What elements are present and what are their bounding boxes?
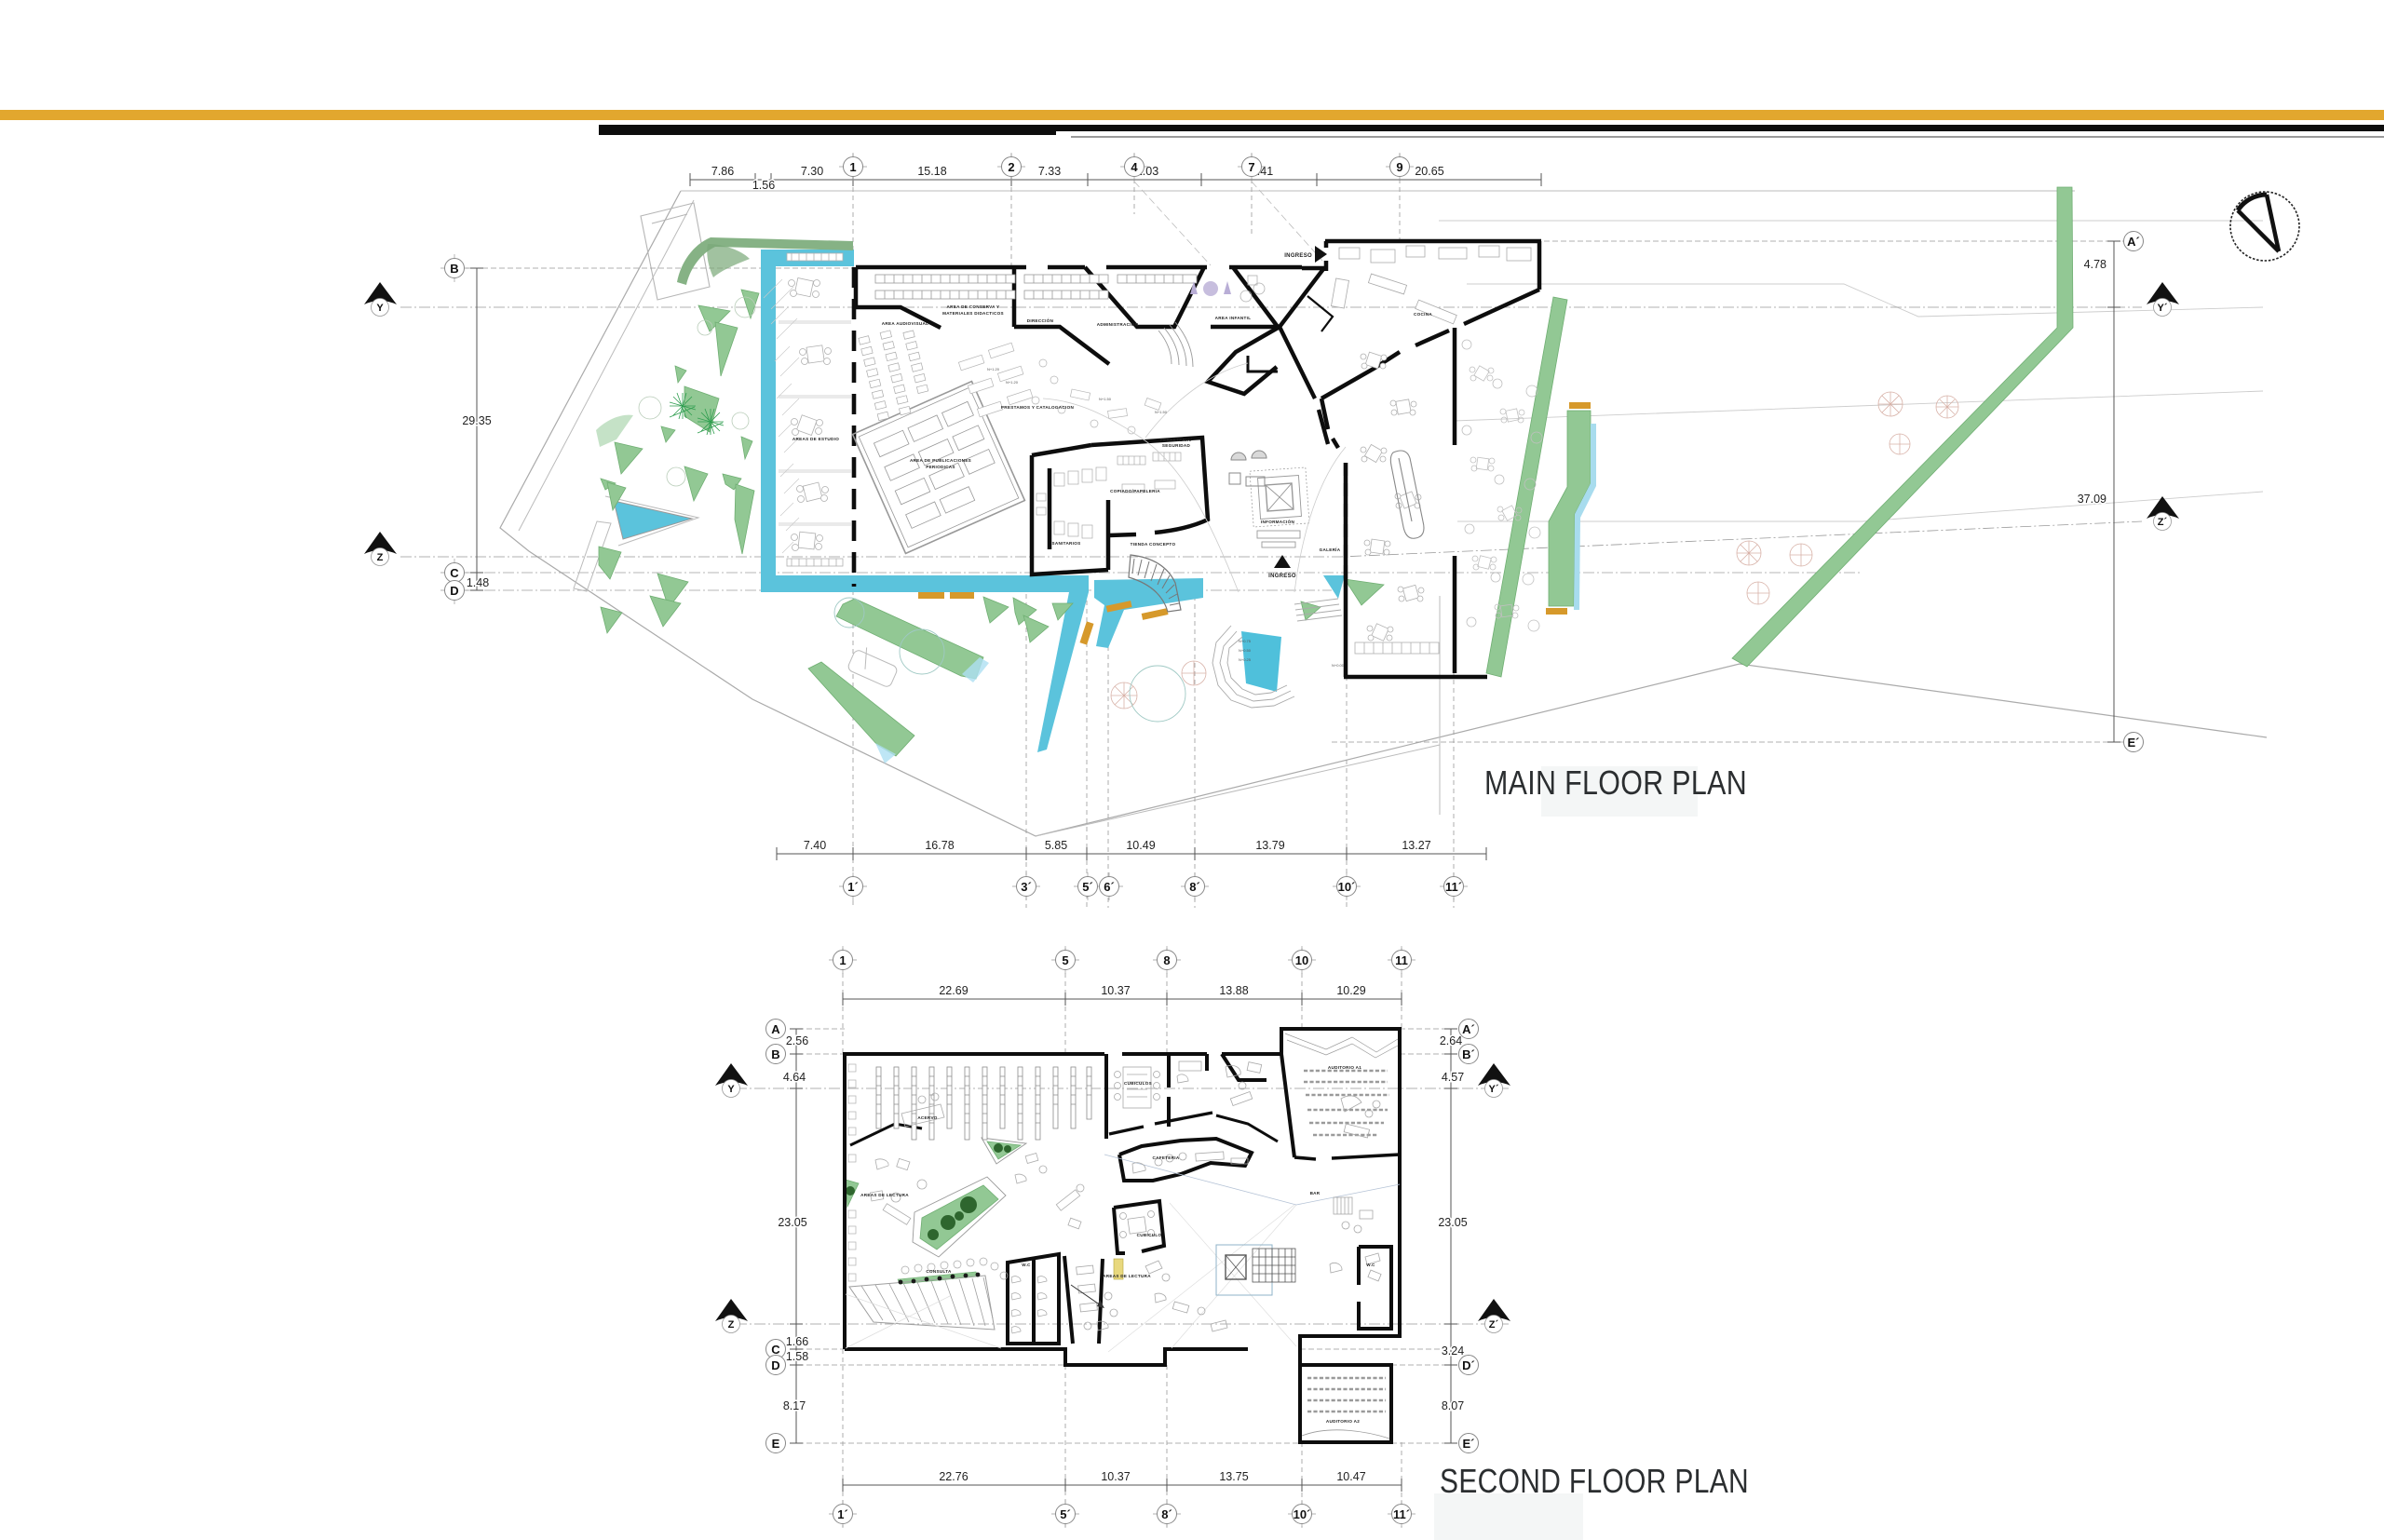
svg-text:9: 9	[1396, 160, 1402, 174]
svg-text:INFORMACIÓN: INFORMACIÓN	[1261, 518, 1295, 524]
svg-text:1: 1	[839, 953, 846, 967]
svg-text:AREA DE PUBLICACIONES: AREA DE PUBLICACIONES	[910, 458, 971, 463]
svg-text:20.65: 20.65	[1415, 165, 1443, 178]
svg-text:N+0.75: N+0.75	[1239, 639, 1252, 643]
svg-text:7: 7	[1248, 160, 1254, 174]
svg-text:E´: E´	[1463, 1437, 1475, 1451]
svg-text:10: 10	[1295, 953, 1308, 967]
svg-text:SEGURIDAD: SEGURIDAD	[1162, 443, 1191, 448]
svg-text:4.78: 4.78	[2084, 258, 2106, 271]
svg-text:8.17: 8.17	[783, 1399, 806, 1412]
svg-text:23.05: 23.05	[1438, 1216, 1467, 1229]
svg-text:E: E	[772, 1437, 780, 1451]
svg-text:8: 8	[1163, 953, 1170, 967]
svg-text:SANITARIOS: SANITARIOS	[1052, 541, 1081, 546]
svg-text:CAFETERIA: CAFETERIA	[1153, 1155, 1180, 1160]
svg-text:Y´: Y´	[1489, 1084, 1499, 1095]
svg-text:B: B	[771, 1047, 779, 1061]
svg-text:B´: B´	[1462, 1047, 1475, 1061]
svg-text:5.85: 5.85	[1045, 839, 1067, 852]
svg-text:10.37: 10.37	[1101, 984, 1130, 997]
svg-text:C: C	[450, 566, 459, 580]
svg-text:N+1.20: N+1.20	[1006, 380, 1019, 385]
svg-text:AREA INFANTIL: AREA INFANTIL	[1215, 316, 1252, 320]
svg-text:E´: E´	[2128, 736, 2140, 750]
svg-text:Y: Y	[727, 1084, 735, 1095]
svg-text:AREA AUDIOVISUAL: AREA AUDIOVISUAL	[882, 321, 928, 326]
svg-text:13.27: 13.27	[1402, 839, 1430, 852]
svg-text:4.57: 4.57	[1442, 1071, 1464, 1084]
svg-text:1.56: 1.56	[752, 179, 775, 192]
svg-text:8´: 8´	[1189, 880, 1200, 894]
svg-text:5´: 5´	[1082, 880, 1093, 894]
svg-text:1.48: 1.48	[467, 576, 489, 589]
svg-text:3.24: 3.24	[1442, 1344, 1464, 1358]
svg-text:1´: 1´	[847, 880, 859, 894]
svg-text:FERRETERIA/: FERRETERIA/	[1160, 438, 1192, 442]
svg-text:COCINA: COCINA	[1414, 312, 1432, 317]
svg-text:15.18: 15.18	[917, 165, 946, 178]
svg-text:N+0.25: N+0.25	[1239, 657, 1252, 662]
svg-text:5: 5	[1062, 953, 1068, 967]
svg-text:D: D	[450, 584, 458, 598]
svg-text:B: B	[450, 262, 458, 276]
svg-text:N+1.20: N+1.20	[987, 367, 1000, 371]
svg-text:AUDITORIO A1: AUDITORIO A1	[1328, 1065, 1361, 1070]
svg-text:N+0.00: N+0.00	[1332, 663, 1345, 668]
svg-text:Y: Y	[376, 303, 384, 314]
svg-text:13.75: 13.75	[1219, 1470, 1248, 1483]
svg-text:Z´: Z´	[2158, 517, 2168, 528]
svg-text:37.09: 37.09	[2078, 493, 2106, 506]
svg-text:10.47: 10.47	[1336, 1470, 1365, 1483]
svg-text:A: A	[771, 1022, 780, 1036]
svg-text:AREA DE CONSERVA Y: AREA DE CONSERVA Y	[947, 304, 1000, 309]
svg-text:BAR: BAR	[1310, 1191, 1321, 1196]
svg-text:DIRECCIÓN: DIRECCIÓN	[1027, 317, 1054, 323]
svg-text:Z´: Z´	[1489, 1319, 1499, 1331]
svg-text:2.56: 2.56	[786, 1034, 808, 1047]
svg-text:3´: 3´	[1021, 880, 1032, 894]
svg-text:29.35: 29.35	[462, 414, 491, 427]
svg-text:8´: 8´	[1161, 1507, 1172, 1521]
svg-text:7.33: 7.33	[1038, 165, 1061, 178]
svg-text:Y´: Y´	[2158, 303, 2168, 314]
svg-text:PERIODICAS: PERIODICAS	[926, 465, 955, 469]
svg-text:INGRESO: INGRESO	[1268, 574, 1296, 579]
svg-text:ACERVO: ACERVO	[917, 1115, 937, 1120]
svg-text:N+1.50: N+1.50	[1099, 397, 1112, 401]
svg-text:10.29: 10.29	[1336, 984, 1365, 997]
svg-text:13.79: 13.79	[1255, 839, 1284, 852]
svg-text:11: 11	[1395, 953, 1408, 967]
svg-text:11´: 11´	[1393, 1507, 1410, 1521]
svg-text:10.49: 10.49	[1126, 839, 1155, 852]
svg-text:10.37: 10.37	[1101, 1470, 1130, 1483]
svg-text:22.76: 22.76	[939, 1470, 968, 1483]
svg-text:ADMINISTRACIÓN: ADMINISTRACIÓN	[1097, 320, 1139, 327]
svg-text:AREAS DE LECTURA: AREAS DE LECTURA	[1103, 1274, 1151, 1278]
svg-text:N+0.50: N+0.50	[1239, 648, 1252, 653]
svg-text:6´: 6´	[1104, 880, 1115, 894]
svg-text:8.07: 8.07	[1442, 1399, 1464, 1412]
svg-text:MATERIALES DIDACTICOS: MATERIALES DIDACTICOS	[942, 311, 1004, 316]
svg-text:7.86: 7.86	[711, 165, 734, 178]
svg-text:10´: 10´	[1338, 880, 1356, 894]
svg-text:23.05: 23.05	[778, 1216, 806, 1229]
svg-text:TIENDA CONCEPTO: TIENDA CONCEPTO	[1131, 542, 1176, 547]
svg-text:1.58: 1.58	[786, 1350, 808, 1363]
svg-text:PRESTAMOS Y CATALOGACION: PRESTAMOS Y CATALOGACION	[1001, 405, 1075, 410]
svg-text:5´: 5´	[1060, 1507, 1071, 1521]
svg-text:7.40: 7.40	[804, 839, 826, 852]
svg-text:CUBICULO: CUBICULO	[1137, 1233, 1162, 1237]
svg-text:COPIADO/PAPELERIA: COPIADO/PAPELERIA	[1110, 489, 1160, 493]
svg-text:16.78: 16.78	[925, 839, 954, 852]
svg-text:GALERÍA: GALERÍA	[1320, 546, 1341, 552]
svg-text:1.66: 1.66	[786, 1335, 808, 1348]
svg-text:W.C: W.C	[1366, 1263, 1375, 1267]
svg-text:AREAS DE LECTURA: AREAS DE LECTURA	[860, 1193, 909, 1197]
svg-text:CONSULTA: CONSULTA	[926, 1269, 952, 1274]
svg-text:Z: Z	[728, 1319, 735, 1331]
svg-text:10´: 10´	[1294, 1507, 1311, 1521]
svg-text:AREAS DE ESTUDIO: AREAS DE ESTUDIO	[792, 437, 839, 441]
svg-text:N+1.50: N+1.50	[1155, 410, 1168, 414]
svg-text:A´: A´	[1462, 1022, 1475, 1036]
svg-text:MAIN FLOOR PLAN: MAIN FLOOR PLAN	[1484, 763, 1747, 802]
svg-text:7.30: 7.30	[801, 165, 823, 178]
svg-text:2.64: 2.64	[1440, 1034, 1462, 1047]
svg-text:W.C: W.C	[1022, 1263, 1031, 1267]
svg-text:AUDITORIO A2: AUDITORIO A2	[1326, 1419, 1360, 1424]
svg-text:INGRESO: INGRESO	[1284, 253, 1312, 259]
svg-text:SECOND FLOOR PLAN: SECOND FLOOR PLAN	[1440, 1462, 1749, 1500]
svg-text:D´: D´	[1462, 1358, 1475, 1372]
svg-text:1´: 1´	[837, 1507, 848, 1521]
svg-text:1: 1	[849, 160, 856, 174]
svg-text:13.88: 13.88	[1219, 984, 1248, 997]
svg-text:22.69: 22.69	[939, 984, 968, 997]
svg-text:A´: A´	[2127, 235, 2140, 249]
svg-text:4: 4	[1131, 160, 1138, 174]
svg-text:11´: 11´	[1445, 880, 1462, 894]
svg-text:C: C	[771, 1343, 780, 1357]
svg-text:2: 2	[1008, 160, 1014, 174]
svg-text:4.64: 4.64	[783, 1071, 806, 1084]
svg-text:D: D	[771, 1358, 779, 1372]
svg-text:Z: Z	[377, 552, 384, 563]
svg-text:CUBICULOS: CUBICULOS	[1124, 1081, 1152, 1086]
